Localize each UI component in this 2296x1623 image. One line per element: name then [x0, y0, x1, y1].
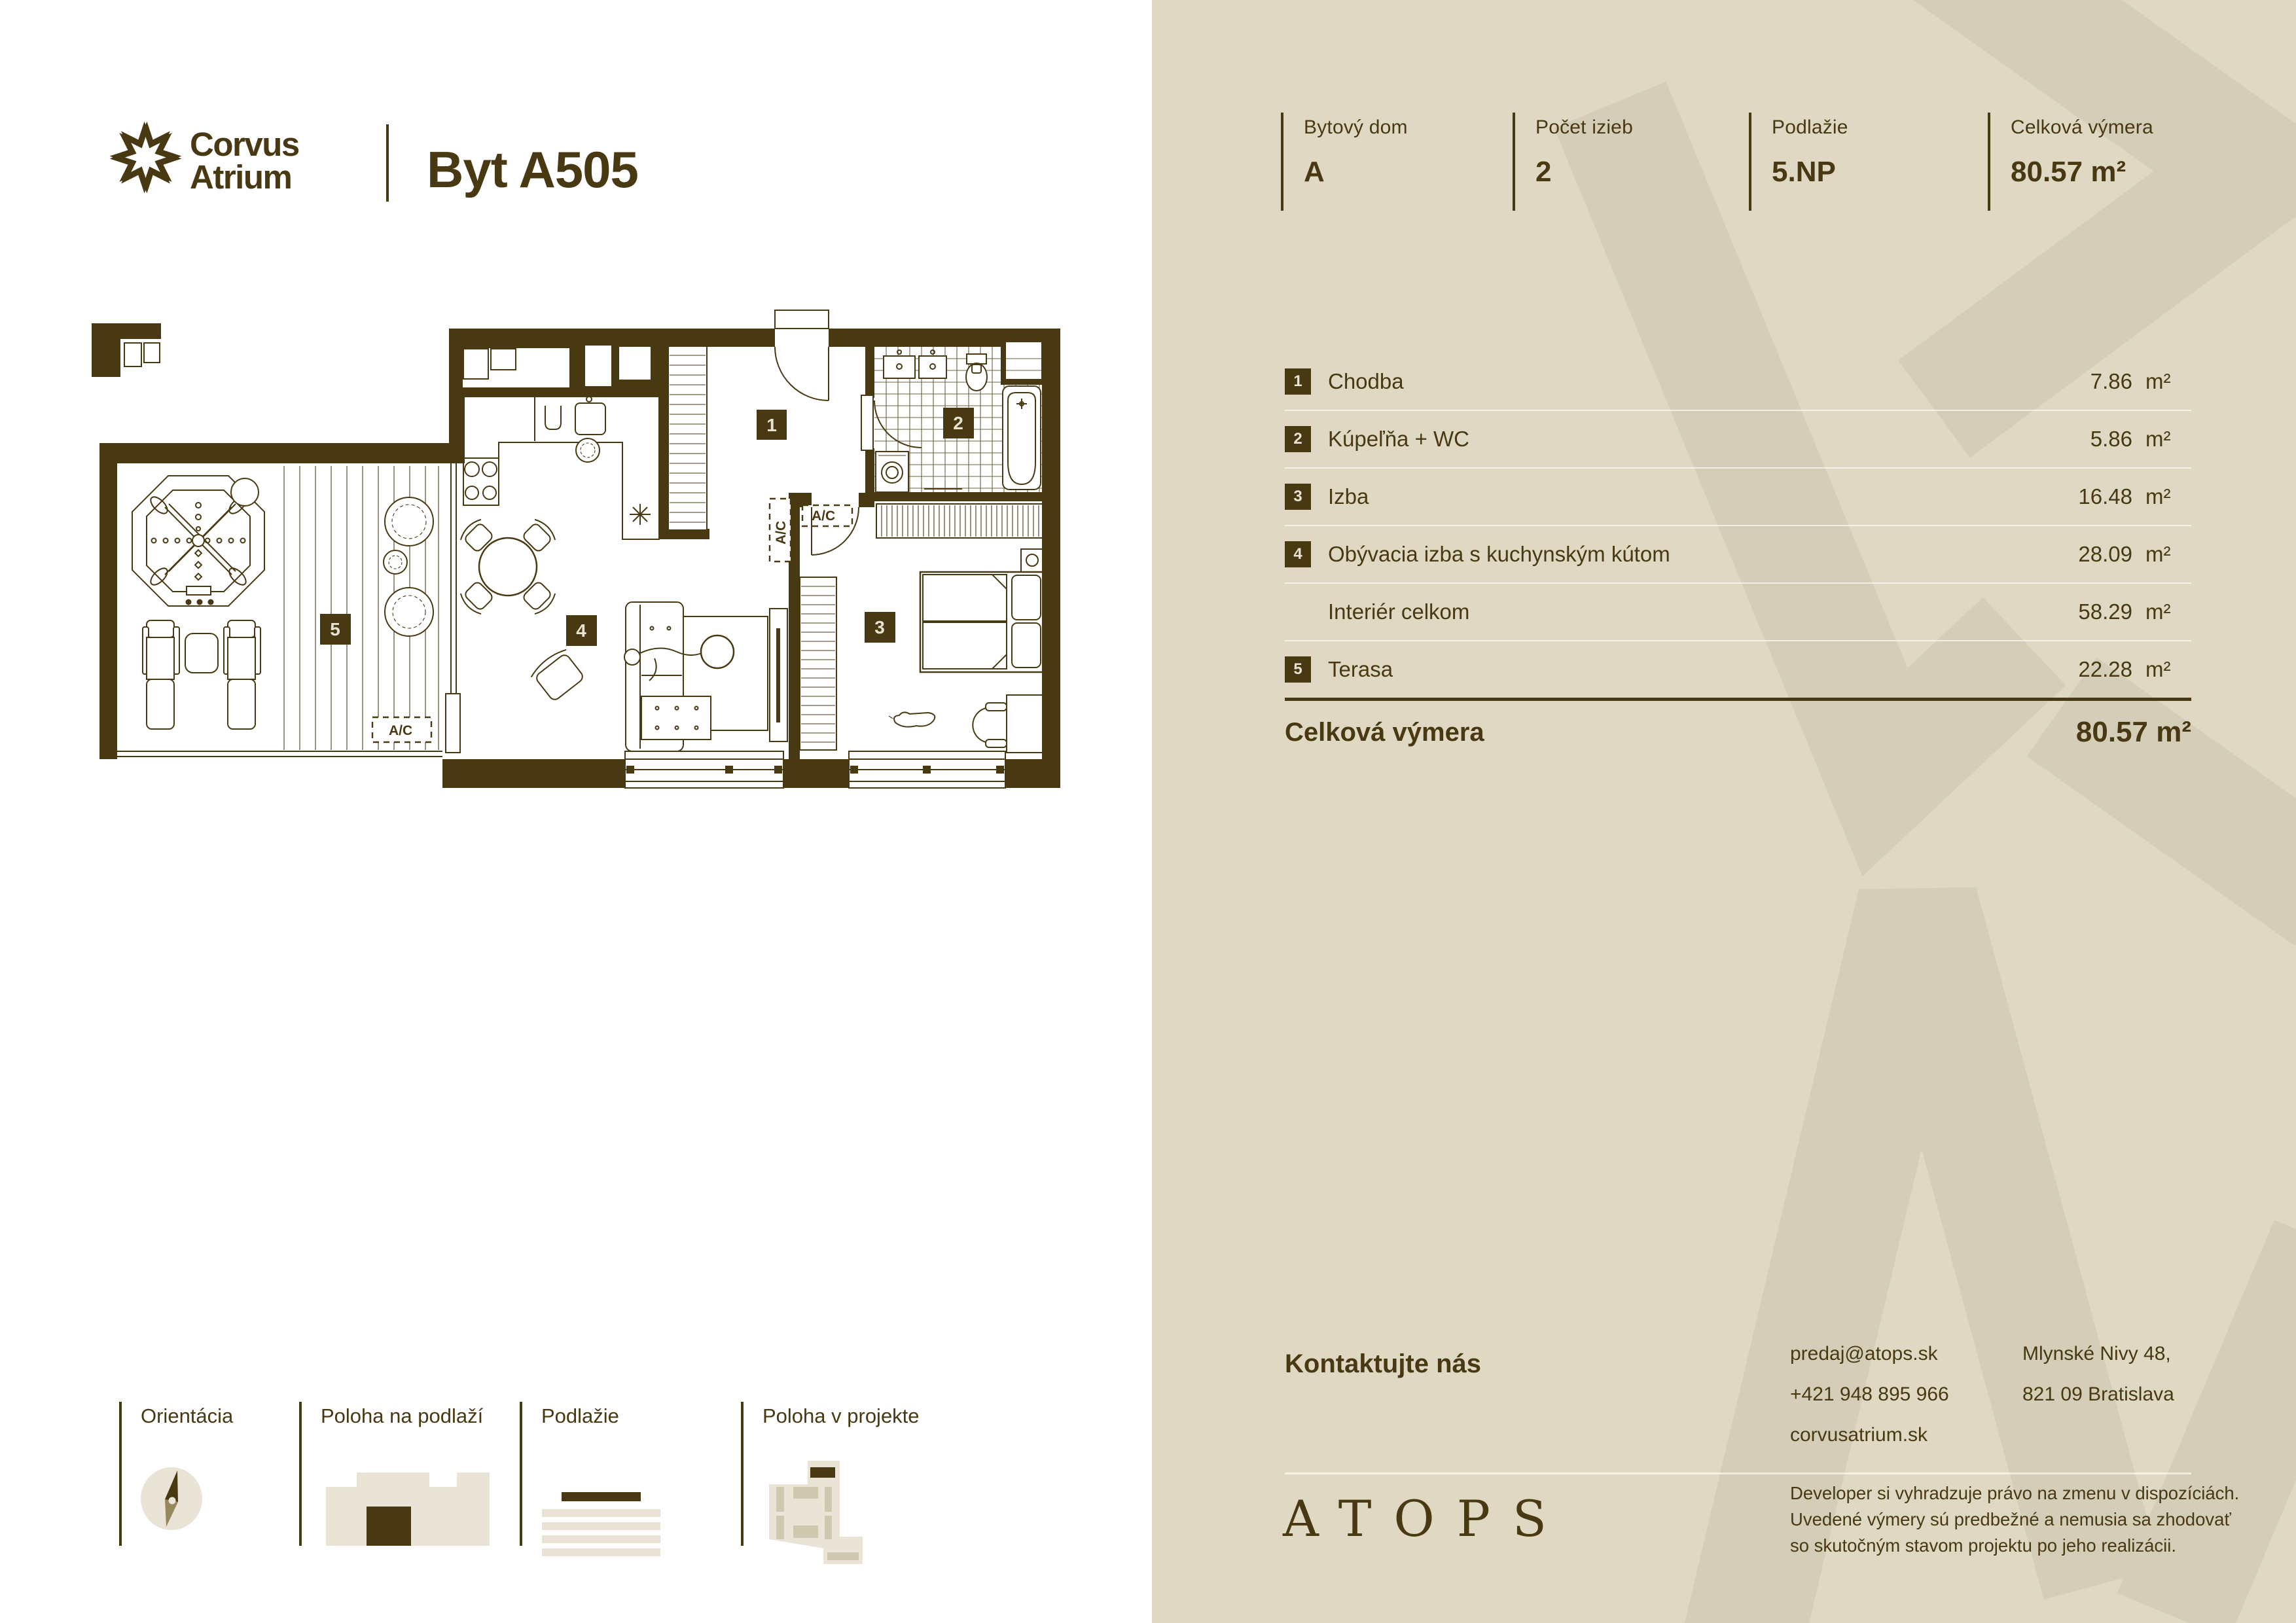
header-divider — [386, 124, 389, 202]
stat-divider — [1513, 113, 1515, 211]
info-panel: Bytový dom A Počet izieb 2 Podlažie 5.NP… — [1152, 0, 2296, 1623]
room-area-value: 16.48 — [2054, 484, 2132, 509]
bed — [920, 572, 1043, 672]
stat-value-floor: 5.NP — [1772, 156, 1836, 188]
compass-icon — [141, 1467, 202, 1530]
room-area-value: 22.28 — [2054, 657, 2132, 682]
sofa — [626, 602, 711, 751]
contact-heading: Kontaktujte nás — [1285, 1349, 1481, 1379]
kitchen-plant — [576, 438, 600, 462]
kitchen — [463, 391, 659, 539]
room-label: Terasa — [1328, 657, 2054, 682]
ac-label-vertical: A/C — [774, 521, 789, 544]
stat-label-area: Celková výmera — [2011, 116, 2153, 139]
ac-label-horizontal: A/C — [812, 508, 835, 524]
room-area-unit: m² — [2132, 599, 2191, 624]
room-label: Chodba — [1328, 369, 2054, 394]
floor-stack-icon — [542, 1492, 660, 1556]
room-number-badge: 2 — [1285, 426, 1311, 452]
bathtub — [1003, 386, 1041, 490]
ac-label-terrace: A/C — [389, 723, 412, 738]
disclaimer-text: Developer si vyhradzuje právo na zmenu v… — [1790, 1480, 2239, 1559]
room-row: 2Kúpeľňa + WC5.86m² — [1285, 411, 2191, 469]
radiator — [876, 504, 1043, 538]
stat-value-building: A — [1304, 156, 1325, 188]
desk-chair — [973, 703, 1007, 747]
nightstand — [1021, 549, 1043, 572]
stat-value-rooms: 2 — [1535, 156, 1551, 188]
ottoman — [641, 696, 711, 740]
corvus-starburst-icon — [105, 116, 187, 198]
sink-double — [884, 350, 946, 378]
contact-address-line1: Mlynské Nivy 48, — [2022, 1334, 2174, 1374]
entrance-door — [775, 310, 829, 401]
plan-badge-1: 1 — [766, 415, 777, 435]
stat-label-floor: Podlažie — [1772, 116, 1848, 139]
tv-console — [770, 609, 787, 741]
room-area-value: 28.09 — [2054, 542, 2132, 567]
desk — [1007, 695, 1043, 753]
plan-badge-5: 5 — [330, 619, 340, 639]
jacuzzi — [132, 476, 264, 606]
room-label: Obývacia izba s kuchynským kútom — [1328, 542, 2054, 567]
window-bedroom — [849, 751, 1005, 788]
total-label: Celková výmera — [1285, 718, 2076, 747]
footer-divider — [1285, 1472, 2191, 1474]
room-area-unit: m² — [2132, 542, 2191, 567]
armchair — [529, 647, 587, 704]
contact-address-line2: 821 09 Bratislava — [2022, 1374, 2174, 1415]
kitchen-sink — [575, 403, 605, 435]
plan-badge-4: 4 — [576, 620, 586, 641]
room-number-badge: 3 — [1285, 484, 1311, 510]
floor-plan: .wall{fill:#483913;} .ln{stroke:#483913;… — [92, 301, 1073, 811]
dishwasher-symbol — [630, 504, 651, 525]
stat-divider — [1749, 113, 1751, 211]
legend-label-floor: Podlažie — [541, 1404, 619, 1428]
contact-details: predaj@atops.sk +421 948 895 966 corvusa… — [1790, 1334, 1949, 1455]
lounger — [224, 620, 260, 729]
window-living — [625, 751, 783, 788]
washing-machine — [876, 452, 908, 492]
sun-loungers — [143, 620, 260, 729]
brand-name: Corvus Atrium — [190, 128, 299, 194]
room-label: Izba — [1328, 484, 2054, 509]
pillow — [1012, 623, 1041, 668]
coffee-table — [701, 635, 734, 668]
room-table-rows: 1Chodba7.86m²2Kúpeľňa + WC5.86m²3Izba16.… — [1285, 353, 2191, 698]
bedroom-wardrobe — [800, 577, 836, 750]
stat-value-area: 80.57 m² — [2011, 156, 2126, 188]
room-area-value: 7.86 — [2054, 369, 2132, 394]
room-row: 1Chodba7.86m² — [1285, 353, 2191, 411]
room-number-badge: 1 — [1285, 368, 1311, 395]
room-row: 4Obývacia izba s kuchynským kútom28.09m² — [1285, 526, 2191, 584]
room-label: Interiér celkom — [1328, 599, 2054, 624]
stat-label-building: Bytový dom — [1304, 116, 1408, 139]
terrace: A/C — [117, 466, 442, 757]
room-area-unit: m² — [2132, 369, 2191, 394]
kitchen-sink-basin — [545, 406, 561, 429]
dog-figure — [889, 712, 935, 726]
plan-badge-2: 2 — [953, 413, 963, 433]
toilet — [966, 354, 987, 391]
terrace-glass-wall — [446, 463, 460, 753]
page-title: Byt A505 — [427, 140, 638, 200]
room-area-unit: m² — [2132, 657, 2191, 682]
legend-label-project-position: Poloha v projekte — [762, 1404, 920, 1428]
contact-phone[interactable]: +421 948 895 966 — [1790, 1374, 1949, 1415]
room-table-total-row: Celková výmera 80.57 m² — [1285, 698, 2191, 764]
pillow — [1012, 575, 1041, 620]
hallway-closet — [668, 346, 707, 530]
contact-website[interactable]: corvusatrium.sk — [1790, 1415, 1949, 1455]
contact-email[interactable]: predaj@atops.sk — [1790, 1334, 1949, 1374]
floorplan-sheet: Bytový dom A Počet izieb 2 Podlažie 5.NP… — [0, 0, 2296, 1623]
room-row: 3Izba16.48m² — [1285, 469, 2191, 526]
terrace-ac: A/C — [372, 717, 431, 742]
room-area-value: 58.29 — [2054, 599, 2132, 624]
site-plan-icon — [769, 1461, 863, 1564]
stat-label-rooms: Počet izieb — [1535, 116, 1633, 139]
legend-label-floor-position: Poloha na podlaží — [321, 1404, 483, 1428]
stat-divider — [1988, 113, 1990, 211]
bathroom-door — [861, 395, 922, 450]
legend-label-orientation: Orientácia — [141, 1404, 233, 1428]
plan-badge-3: 3 — [874, 617, 885, 637]
side-table — [185, 633, 218, 673]
stat-divider — [1281, 113, 1283, 211]
room-label: Kúpeľňa + WC — [1328, 427, 2054, 452]
terrace-plants — [384, 497, 433, 636]
building-icon — [326, 1472, 490, 1546]
dining-set — [458, 517, 558, 617]
room-row: Interiér celkom58.29m² — [1285, 584, 2191, 641]
lounger — [143, 620, 179, 729]
room-number-badge: 5 — [1285, 656, 1311, 683]
total-value: 80.57 m² — [2076, 716, 2191, 749]
room-table: 1Chodba7.86m²2Kúpeľňa + WC5.86m²3Izba16.… — [1285, 353, 2191, 764]
bedroom — [800, 504, 1043, 753]
contact-address: Mlynské Nivy 48, 821 09 Bratislava — [2022, 1334, 2174, 1415]
room-area-unit: m² — [2132, 427, 2191, 452]
room-area-unit: m² — [2132, 484, 2191, 509]
atops-logo: ATOPS — [1283, 1489, 1569, 1548]
legend-icons — [92, 1440, 942, 1610]
room-number-badge: 4 — [1285, 541, 1311, 567]
room-row: 5Terasa22.28m² — [1285, 641, 2191, 698]
room-area-value: 5.86 — [2054, 427, 2132, 452]
